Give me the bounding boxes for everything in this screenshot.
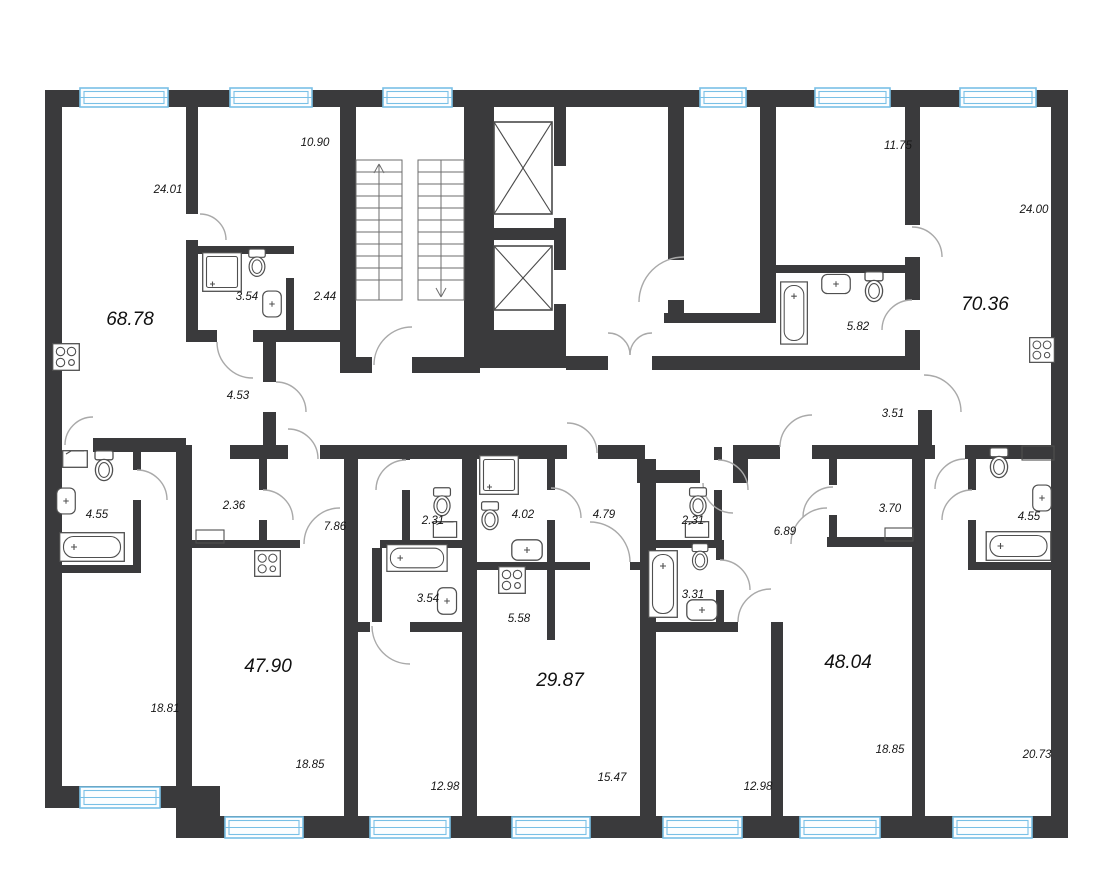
window [80,787,160,808]
bathtub-icon [60,533,125,562]
door-arc [630,333,652,355]
door-arc [738,589,771,622]
room-area-label: 18.85 [876,744,905,756]
window [230,88,312,107]
room-area-label: 10.90 [301,137,330,149]
floor-plan-svg: 68.78 24.01 10.90 3.54 2.44 4.53 18.81 4… [0,0,1113,880]
window [815,88,890,107]
stove-icon [499,567,526,594]
window [700,88,746,107]
windows [80,88,1036,838]
room-area-label: 20.73 [1022,749,1052,761]
window [225,817,303,838]
door-arc [276,382,306,412]
stove-icon [1030,338,1055,363]
door-arc [137,470,167,500]
room-area-label: 3.54 [417,593,439,605]
bathtub-icon [986,532,1051,561]
window [370,817,450,838]
toilet-icon [865,272,883,302]
door-arc [608,333,630,355]
sink-icon [822,274,851,293]
room-area-label: 7.86 [324,521,347,533]
window [80,88,168,107]
window [953,817,1032,838]
door-arc [567,423,597,453]
door-arc [935,459,965,489]
door-arc [376,460,406,490]
apartment-total-area: 48.04 [824,652,872,673]
door-arc [590,522,630,562]
door-arc [65,417,93,445]
elevator-shaft [494,246,552,310]
door-arc [942,490,972,520]
shower-icon [480,456,519,495]
door-arc [720,560,750,590]
apartment-total-area: 68.78 [106,309,154,330]
room-area-label: 12.98 [744,781,773,793]
toilet-icon [434,488,451,516]
floor-plan-page: 68.78 24.01 10.90 3.54 2.44 4.53 18.81 4… [0,0,1113,880]
sink-icon [512,540,542,560]
room-area-label: 24.01 [153,184,183,196]
door-arc [924,375,961,412]
door-arc [780,415,812,447]
room-area-label: 3.70 [879,503,902,515]
sink-icon [1033,485,1052,511]
apartment-total-area: 70.36 [961,294,1009,315]
toilet-icon [692,544,708,570]
door-arc [372,626,410,664]
sink-icon [687,600,717,620]
door-arc [551,488,581,518]
room-area-label: 4.55 [86,509,109,521]
apartment-total-area: 47.90 [244,656,292,677]
door-arc [912,227,942,257]
walls [45,90,1068,838]
room-area-label: 15.47 [598,772,627,784]
door-arc [803,487,833,517]
window [960,88,1036,107]
toilet-icon [690,488,707,516]
window [383,88,452,107]
sink-icon [57,488,76,514]
door-arc [200,214,226,240]
room-area-label: 11.75 [884,140,913,152]
room-area-label: 18.81 [151,703,180,715]
room-area-label: 18.85 [296,759,325,771]
room-area-label: 4.55 [1018,511,1041,523]
apartment-total-area: 29.87 [535,670,585,691]
door-arc [791,508,827,544]
staircase [356,160,464,300]
toilet-icon [95,451,113,481]
room-area-label: 5.82 [847,321,870,333]
room-area-label: 2.44 [313,291,336,303]
bathtub-icon [781,282,808,344]
window [512,817,590,838]
toilet-icon [482,502,499,530]
room-area-label: 3.51 [882,408,904,420]
room-area-label: 2.31 [421,515,444,527]
washer-icon [63,451,88,468]
door-arc [639,257,684,302]
bathtub-icon [649,551,678,618]
room-area-label: 3.31 [682,589,704,601]
window [663,817,742,838]
room-area-label: 4.02 [512,509,535,521]
shower-icon [203,253,242,292]
room-area-label: 2.36 [222,500,246,512]
labels: 68.78 24.01 10.90 3.54 2.44 4.53 18.81 4… [86,137,1052,793]
stove-icon [53,344,80,371]
door-arc [374,327,412,365]
room-area-label: 12.98 [431,781,460,793]
elevator-shaft [494,122,552,214]
door-arc [217,342,253,378]
sink-icon [437,588,456,615]
toilet-icon [249,249,266,276]
toilet-icon [990,448,1008,478]
door-arc [263,490,293,520]
door-arc [882,300,912,330]
room-area-label: 6.89 [774,526,797,538]
room-area-label: 5.58 [508,613,531,625]
room-area-label: 2.31 [681,515,704,527]
bathtub-icon [387,545,447,572]
stove-icon [255,551,281,577]
room-area-label: 24.00 [1019,204,1049,216]
sink-icon [263,291,282,317]
room-area-label: 4.53 [227,390,250,402]
room-area-label: 4.79 [593,509,616,521]
door-arc [288,429,318,459]
room-area-label: 3.54 [236,291,258,303]
window [800,817,880,838]
